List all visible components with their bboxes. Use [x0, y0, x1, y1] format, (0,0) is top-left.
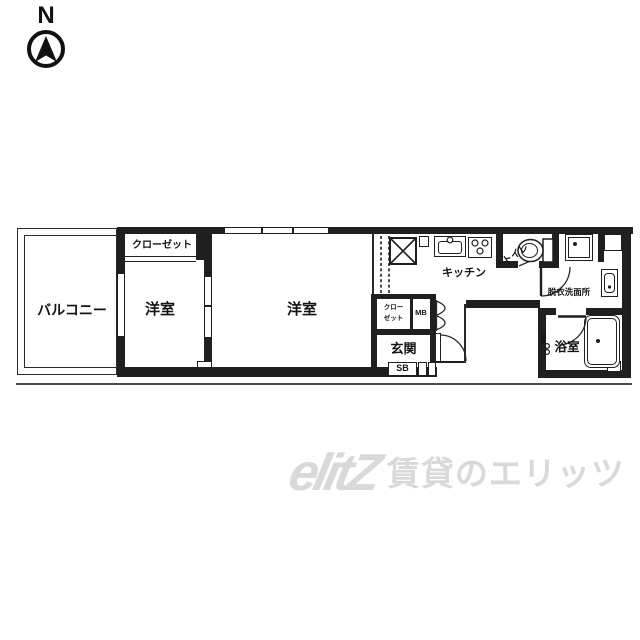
watermark-logo: elitZ: [284, 447, 382, 499]
bathroom-label: 浴室: [550, 340, 584, 356]
pipe-shaft-label: PS: [535, 333, 553, 345]
shoe-box-label: SB: [388, 362, 417, 376]
mb-door-arcs: [436, 300, 445, 331]
opening-dashed-line: [381, 236, 389, 294]
entrance-label: 玄関: [377, 335, 430, 363]
kitchen-label: キッチン: [432, 266, 496, 281]
entrance-door-leaf: [435, 333, 441, 362]
north-arrow-icon: [29, 32, 63, 66]
north-label: N: [33, 2, 59, 30]
bedroom-main-label: 洋室: [278, 301, 326, 319]
closet-label: クローゼット: [126, 240, 198, 252]
refrigerator-space-icon: [389, 237, 417, 265]
bedroom-left-label: 洋室: [136, 301, 184, 319]
stove-icon: [468, 237, 492, 258]
floorplan-page: N: [0, 0, 640, 640]
watermark: elitZ 賃貸のエリッツ: [290, 447, 625, 499]
meter-box-label: MB: [411, 307, 431, 319]
washroom-label: 脱衣洗面所: [538, 286, 600, 299]
entrance-door-arc: [441, 335, 466, 361]
balcony-label: バルコニー: [28, 302, 116, 318]
hall-closet-label-2: ゼット: [377, 313, 410, 325]
watermark-text: 賃貸のエリッツ: [387, 457, 625, 490]
